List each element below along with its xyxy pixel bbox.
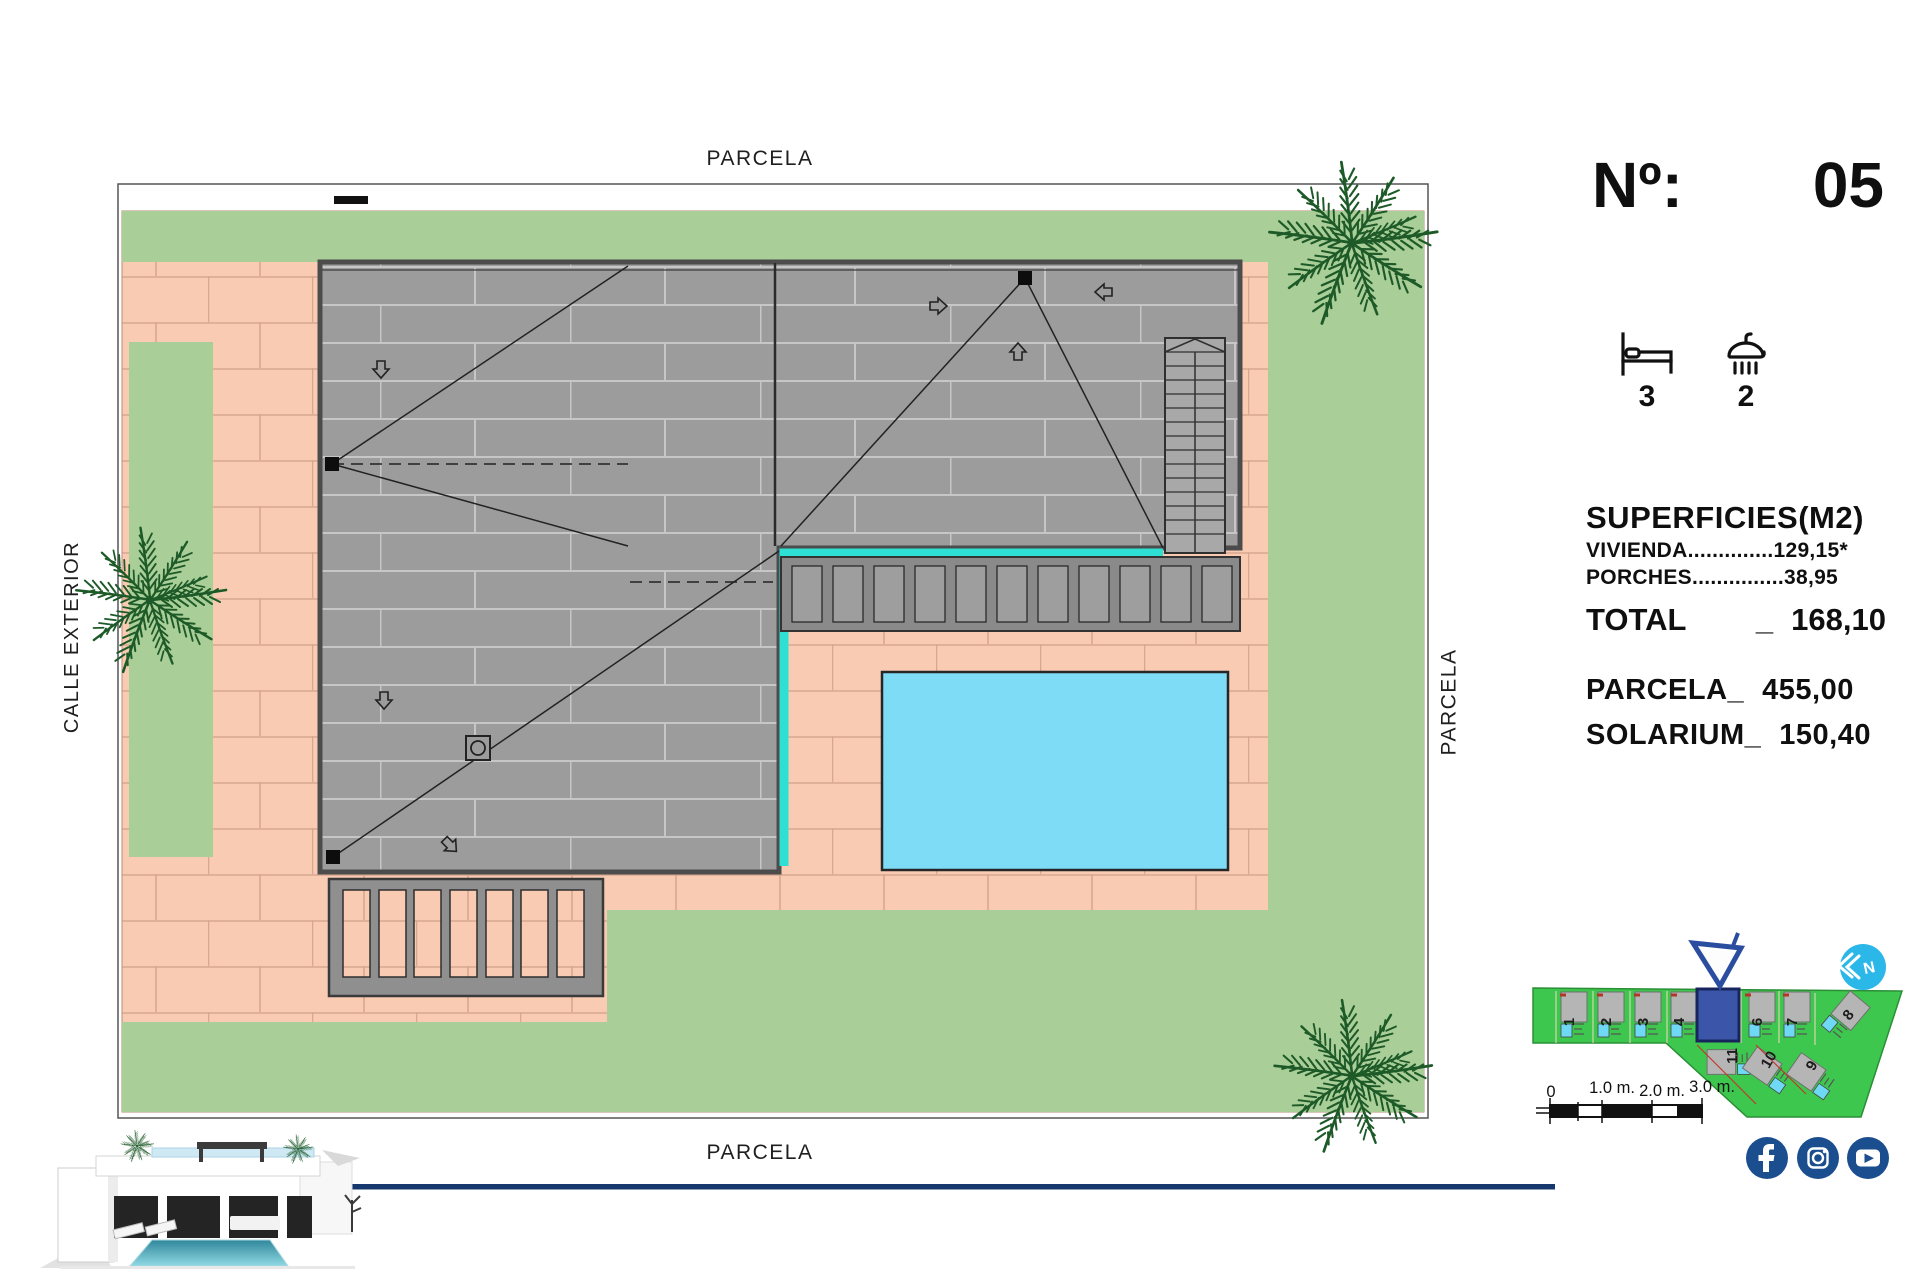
bathrooms-feature: 2 — [1720, 330, 1772, 414]
villa-render-thumbnail — [40, 1130, 361, 1269]
parcel-label-right: PARCELA — [1436, 649, 1461, 756]
page: 1 2 3 4 6 7 8 9 10 11 N 0 1.0 m. — [0, 0, 1920, 1280]
porches-row: PORCHES...............38,95 — [1586, 566, 1916, 590]
plot-number-label: Nº: — [1592, 148, 1683, 222]
vivienda-row: VIVIENDA..............129,15* — [1586, 539, 1916, 563]
plot-number: 3 — [1635, 1018, 1652, 1026]
parcela-row: PARCELA_ 455,00 — [1586, 674, 1916, 707]
leader-dots: .............. — [1688, 539, 1774, 562]
scale-bar: 0 1.0 m. 2.0 m. 3.0 m. — [1536, 1078, 1735, 1124]
solarium-value: 150,40 — [1779, 719, 1871, 752]
total-separator: _ — [1756, 602, 1773, 638]
parcela-value: 455,00 — [1762, 674, 1854, 707]
leader-dots: ............... — [1692, 566, 1784, 589]
compass-icon: N — [1839, 944, 1886, 990]
site-plan — [76, 162, 1437, 1152]
bed-icon — [1618, 330, 1676, 378]
total-row: TOTAL _ 168,10 — [1586, 602, 1886, 638]
features-row: 3 2 — [1618, 330, 1772, 414]
solarium-label: SOLARIUM_ — [1586, 719, 1761, 752]
scale-label: 0 — [1546, 1083, 1555, 1101]
scale-label: 3.0 m. — [1689, 1078, 1735, 1096]
solarium-row: SOLARIUM_ 150,40 — [1586, 719, 1916, 752]
instagram-icon[interactable] — [1797, 1137, 1839, 1179]
location-marker-icon — [1693, 933, 1741, 986]
plot-number-header: Nº: 05 — [1592, 148, 1884, 222]
staircase — [1165, 338, 1225, 553]
surfaces-panel: SUPERFICIES(M2) VIVIENDA..............12… — [1586, 500, 1916, 752]
divider-line — [347, 1184, 1555, 1190]
bedrooms-count: 3 — [1639, 380, 1656, 414]
total-label: TOTAL — [1586, 602, 1686, 638]
parcel-label-bottom: PARCELA — [600, 1140, 920, 1165]
plot-number: 6 — [1749, 1018, 1766, 1026]
porch-rafters — [781, 557, 1240, 631]
surfaces-title: SUPERFICIES(M2) — [1586, 500, 1916, 536]
scale-label: 1.0 m. — [1589, 1079, 1635, 1097]
social-icons — [1746, 1137, 1889, 1179]
shower-icon — [1720, 330, 1772, 378]
plot-number: 1 — [1561, 1018, 1578, 1026]
plot-number: 2 — [1598, 1018, 1615, 1026]
plot-number: 7 — [1784, 1018, 1801, 1026]
scale-label: 2.0 m. — [1639, 1082, 1685, 1100]
plot-number-value: 05 — [1813, 148, 1884, 222]
vivienda-label: VIVIENDA — [1586, 539, 1688, 562]
parcel-label-top: PARCELA — [600, 146, 920, 171]
parcela-label: PARCELA_ — [1586, 674, 1744, 707]
street-label-left: CALLE EXTERIOR — [60, 541, 84, 733]
roof-vent — [466, 736, 490, 760]
facebook-icon[interactable] — [1746, 1137, 1788, 1179]
swimming-pool — [882, 672, 1228, 870]
gate-marker — [334, 196, 368, 204]
porches-value: 38,95 — [1784, 566, 1838, 589]
minimap-highlighted-plot — [1697, 989, 1739, 1041]
total-value: 168,10 — [1791, 602, 1886, 638]
porches-label: PORCHES — [1586, 566, 1692, 589]
bedrooms-feature: 3 — [1618, 330, 1676, 414]
pergola — [329, 879, 603, 996]
youtube-icon[interactable] — [1847, 1137, 1889, 1179]
bathrooms-count: 2 — [1738, 380, 1755, 414]
vivienda-value: 129,15* — [1773, 539, 1848, 562]
plot-number: 11 — [1724, 1048, 1741, 1064]
plot-number: 4 — [1671, 1017, 1688, 1026]
